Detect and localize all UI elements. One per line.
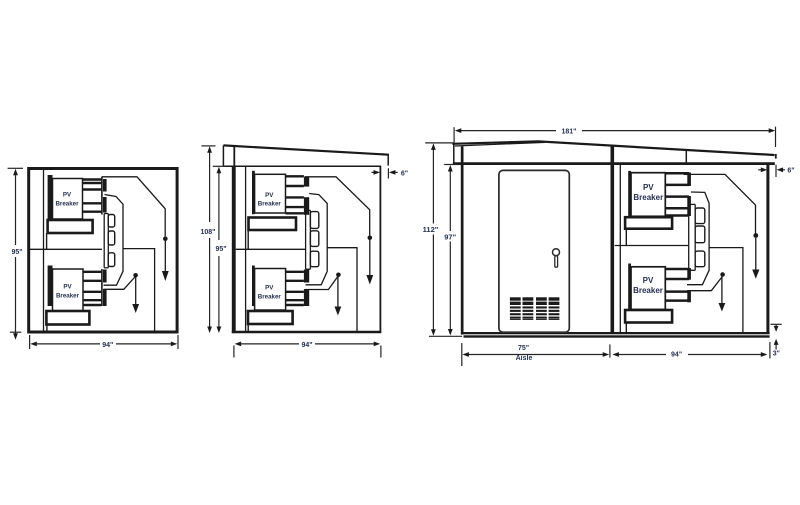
svg-text:97": 97" bbox=[444, 233, 456, 242]
svg-text:PV: PV bbox=[643, 183, 654, 192]
svg-text:PV: PV bbox=[265, 192, 274, 199]
svg-text:Breaker: Breaker bbox=[633, 286, 663, 295]
svg-text:94": 94" bbox=[671, 352, 682, 359]
svg-text:Breaker: Breaker bbox=[55, 201, 79, 208]
svg-text:95": 95" bbox=[215, 246, 226, 253]
svg-text:PV: PV bbox=[63, 284, 72, 291]
svg-text:PV: PV bbox=[643, 276, 654, 285]
svg-text:108": 108" bbox=[201, 229, 216, 236]
svg-text:PV: PV bbox=[63, 192, 72, 199]
svg-text:Breaker: Breaker bbox=[633, 193, 663, 202]
svg-text:6": 6" bbox=[401, 171, 408, 178]
svg-text:Breaker: Breaker bbox=[258, 293, 282, 300]
svg-text:3": 3" bbox=[773, 351, 780, 358]
svg-text:94": 94" bbox=[102, 342, 113, 349]
svg-text:95": 95" bbox=[11, 249, 22, 256]
svg-text:Aisle: Aisle bbox=[516, 355, 533, 362]
svg-text:Breaker: Breaker bbox=[56, 293, 80, 300]
svg-text:181": 181" bbox=[562, 129, 577, 136]
svg-text:75": 75" bbox=[518, 345, 529, 352]
svg-text:Breaker: Breaker bbox=[258, 201, 282, 208]
svg-text:94": 94" bbox=[301, 342, 312, 349]
svg-text:112": 112" bbox=[423, 225, 439, 234]
svg-text:PV: PV bbox=[265, 285, 274, 292]
svg-text:6": 6" bbox=[787, 168, 794, 175]
